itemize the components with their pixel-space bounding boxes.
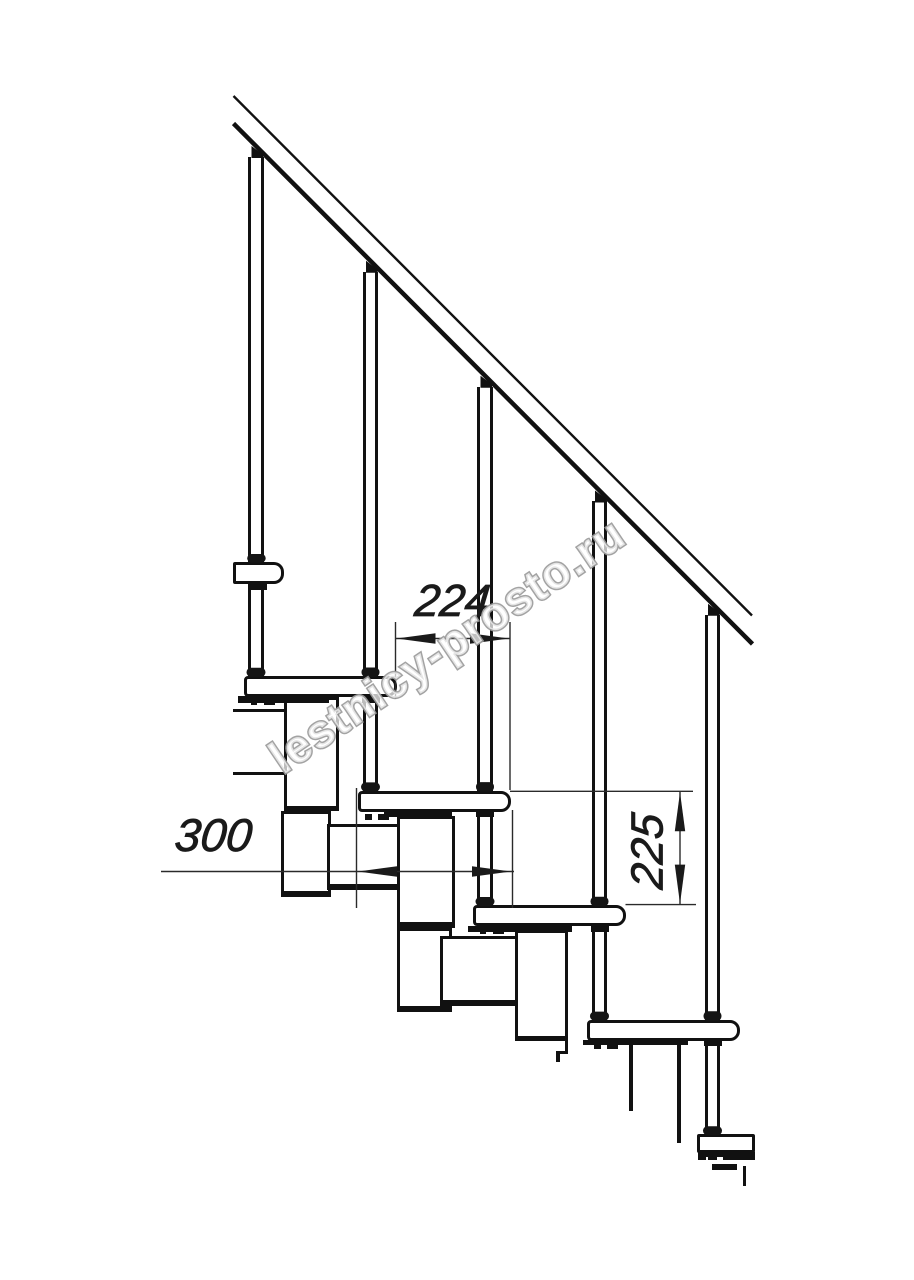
svg-text:lestnicy-prosto.ru: lestnicy-prosto.ru <box>260 507 635 783</box>
svg-text:300: 300 <box>173 809 256 861</box>
svg-text:225: 225 <box>622 810 673 892</box>
